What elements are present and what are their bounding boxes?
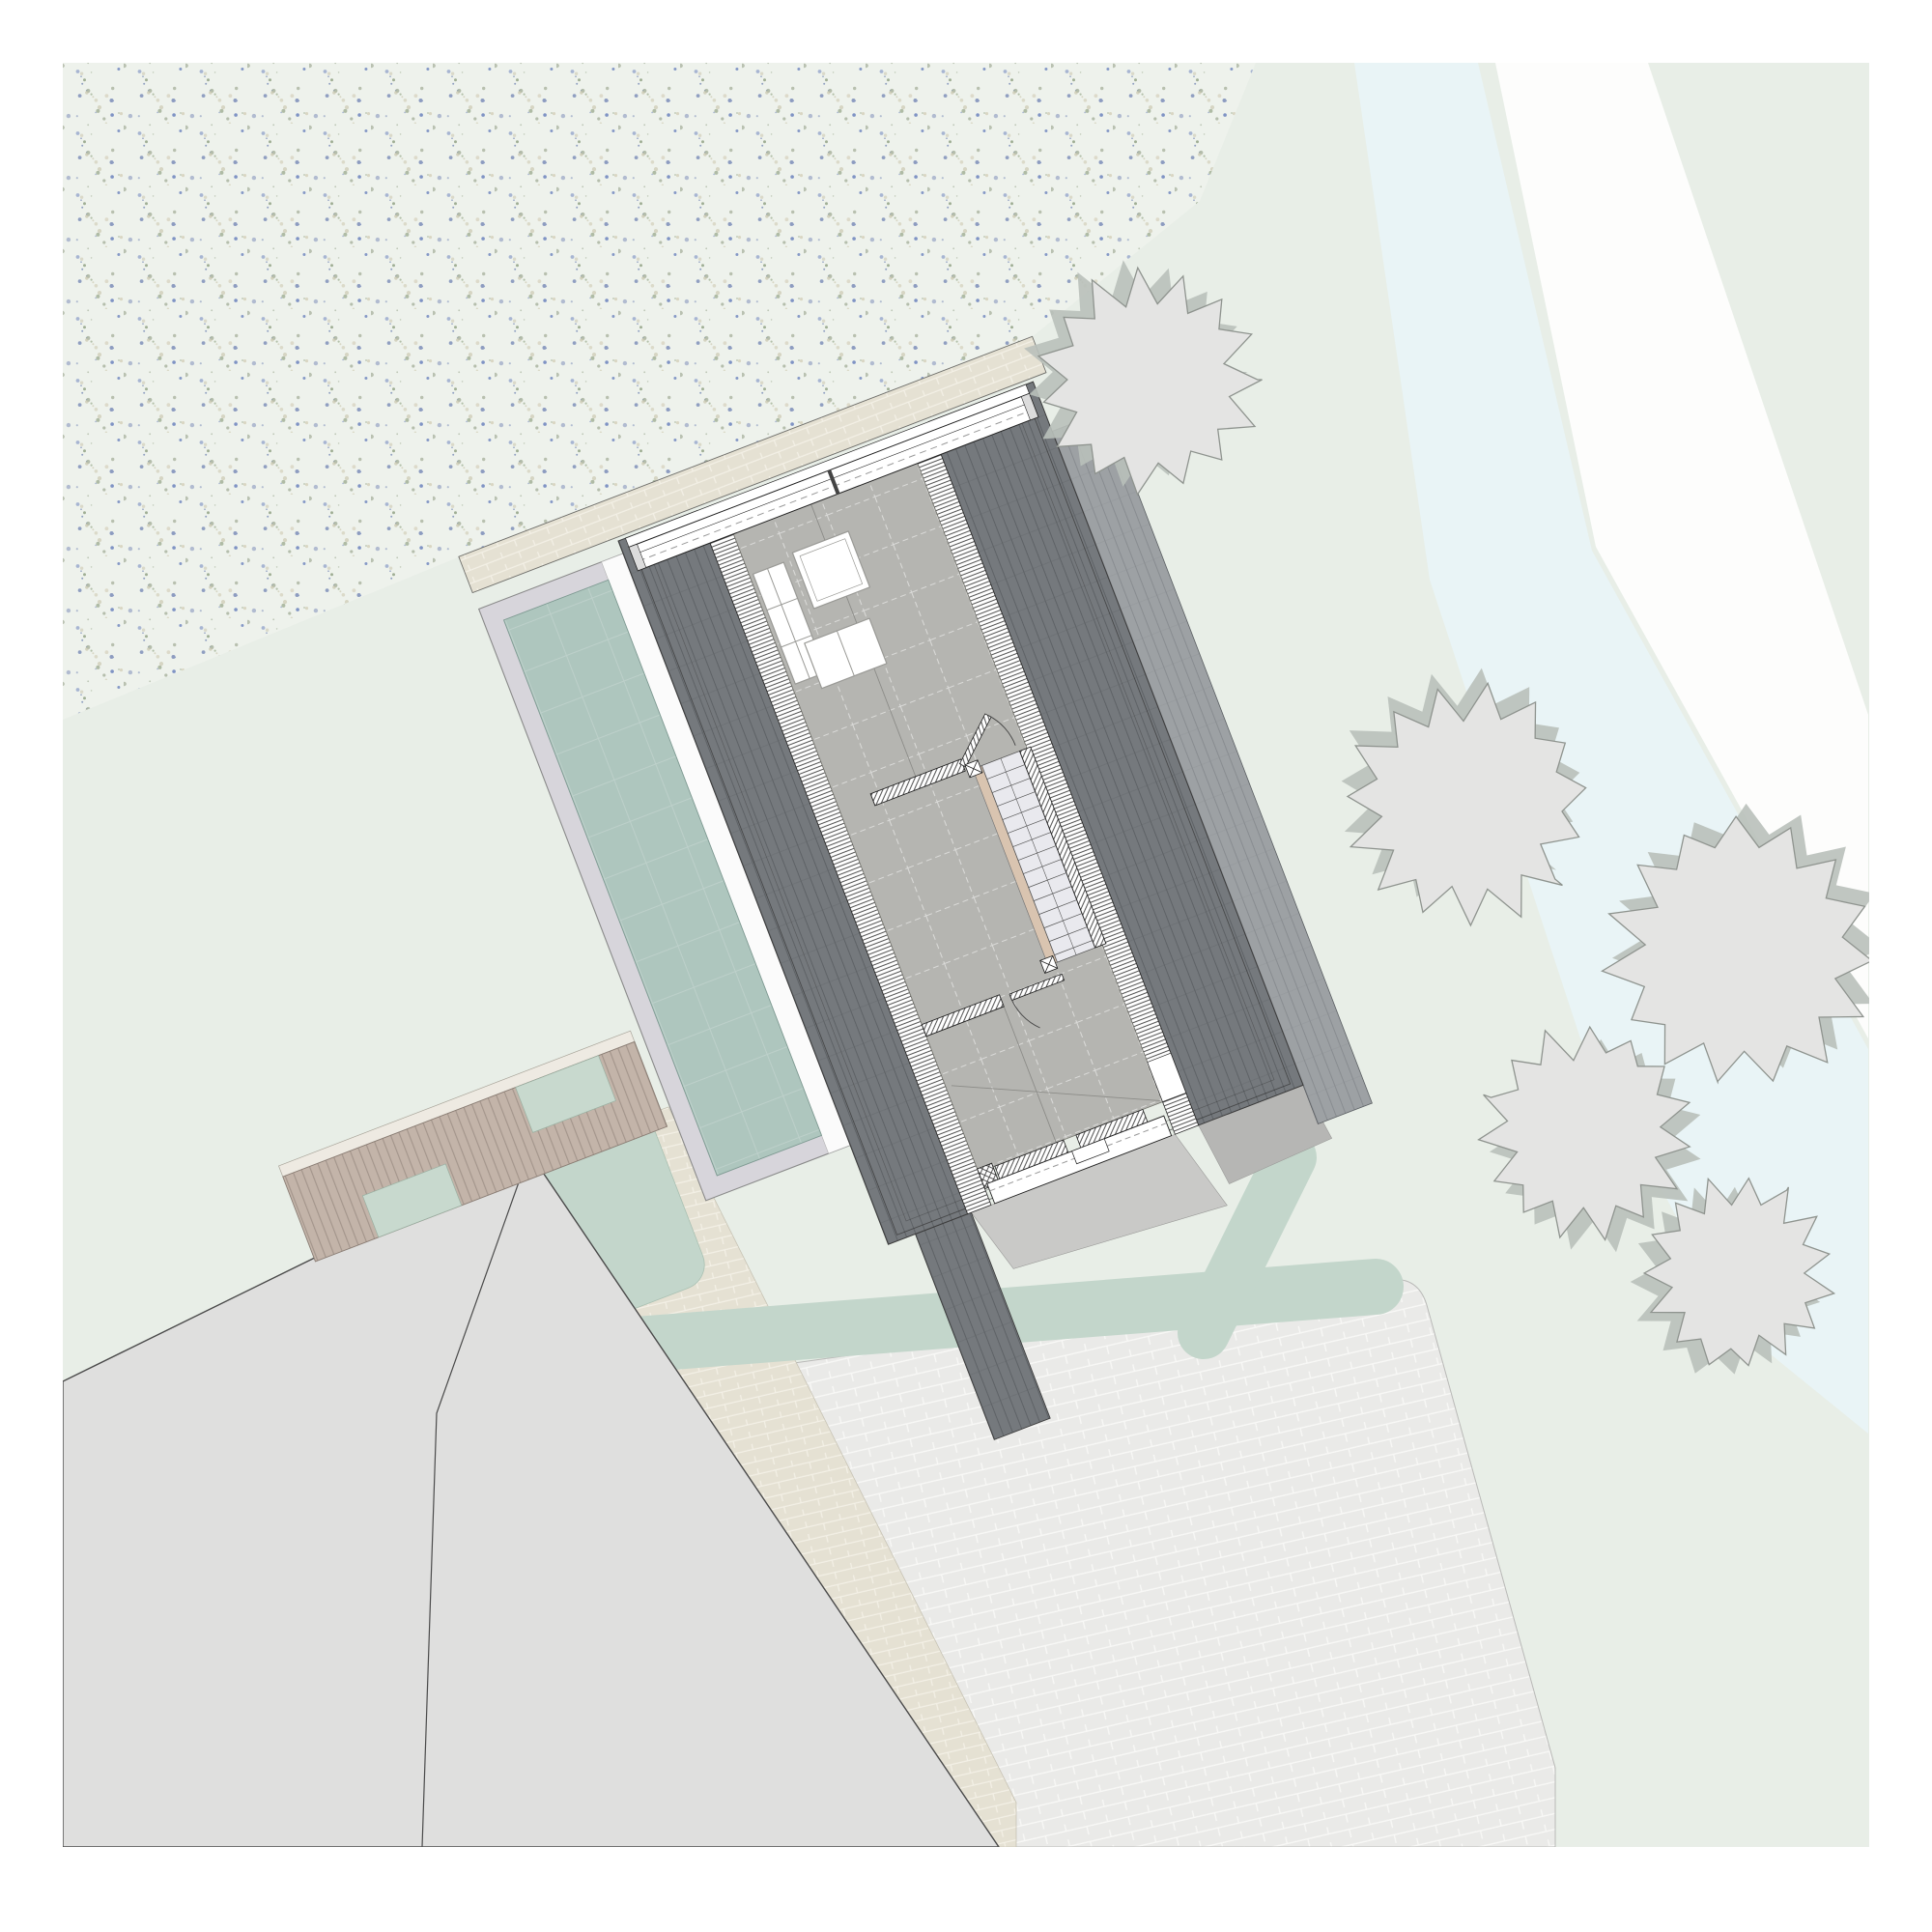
site-plan-page [0, 0, 1932, 1932]
site-plan-drawing [0, 0, 1932, 1932]
